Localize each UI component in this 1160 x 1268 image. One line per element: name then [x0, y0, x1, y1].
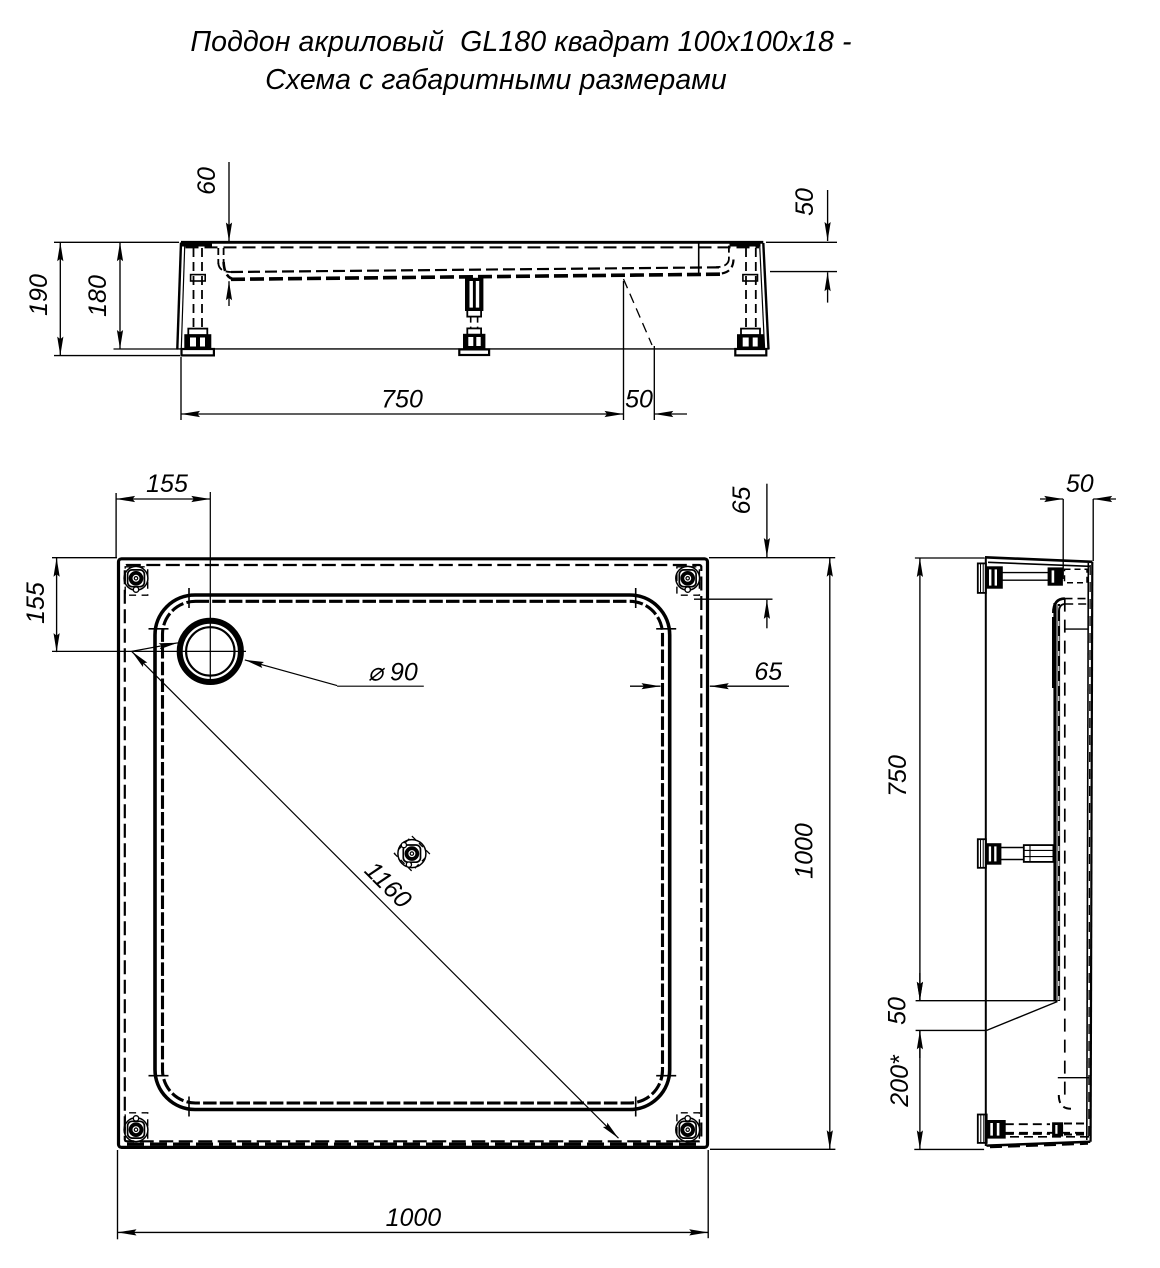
- svg-text:Схема с габаритными размерами: Схема с габаритными размерами: [265, 64, 727, 96]
- svg-text:50: 50: [625, 386, 653, 414]
- svg-text:750: 750: [381, 386, 423, 414]
- svg-text:50: 50: [1066, 470, 1094, 498]
- svg-text:⌀ 90: ⌀ 90: [368, 658, 418, 686]
- svg-text:60: 60: [193, 167, 221, 195]
- svg-text:65: 65: [754, 658, 782, 686]
- svg-text:155: 155: [146, 470, 188, 498]
- svg-text:Поддон акриловый GL180 квадра: Поддон акриловый GL180 квадрат 100х100х1…: [190, 26, 851, 58]
- svg-text:180: 180: [84, 275, 112, 317]
- svg-text:50: 50: [791, 188, 819, 216]
- svg-text:1000: 1000: [386, 1204, 442, 1232]
- svg-text:200*: 200*: [886, 1054, 914, 1108]
- svg-text:1000: 1000: [791, 823, 819, 879]
- svg-text:65: 65: [728, 487, 756, 515]
- svg-text:155: 155: [22, 582, 50, 624]
- svg-text:750: 750: [884, 755, 912, 797]
- svg-text:50: 50: [883, 997, 911, 1025]
- svg-text:190: 190: [25, 274, 53, 316]
